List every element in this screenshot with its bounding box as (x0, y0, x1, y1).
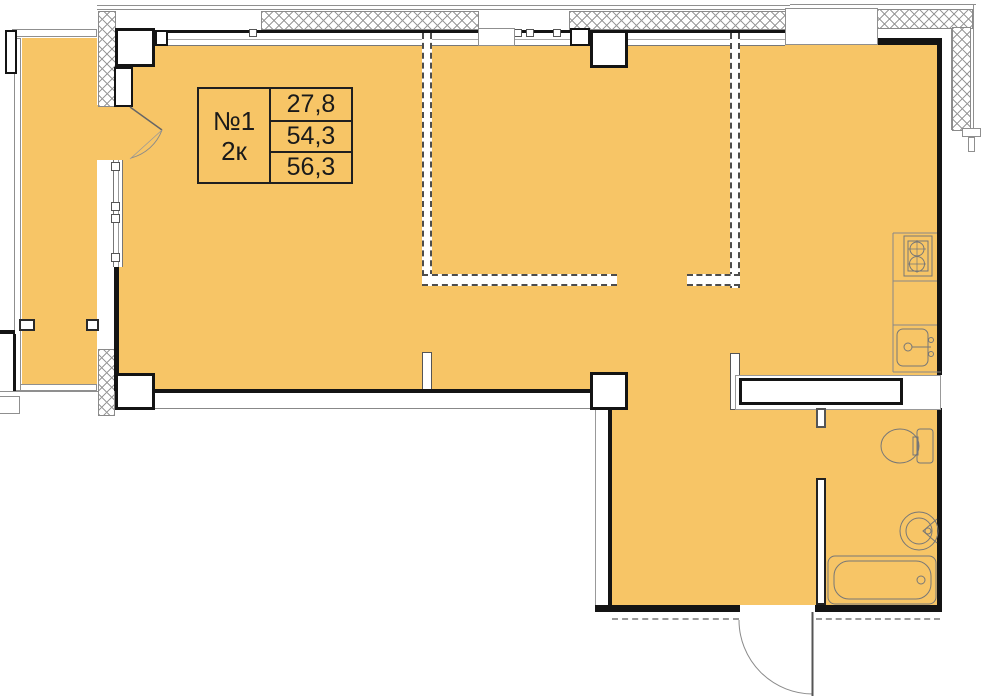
unit-area-1: 27,8 (271, 89, 351, 120)
column (590, 372, 628, 410)
outer-line (0, 413, 20, 414)
dashed-partition-horizontal (422, 274, 617, 286)
wall-hall-left (608, 408, 612, 605)
wardrobe-niche (739, 378, 903, 405)
column (590, 30, 628, 68)
wall-top-right (878, 38, 941, 45)
unit-area-3: 56,3 (271, 151, 351, 182)
unit-label-table: №1 2к 27,8 54,3 56,3 (197, 87, 353, 184)
outer-line (951, 28, 952, 130)
hatched-wall (570, 12, 785, 29)
facade-pier (785, 8, 878, 45)
wall-bottom-bath (815, 605, 941, 612)
floor-area-hall-bath (612, 408, 937, 605)
floor-plan: №1 2к 27,8 54,3 56,3 (0, 0, 983, 700)
hatched-wall (99, 350, 114, 415)
balcony-stub (19, 319, 35, 331)
outer-line (0, 396, 20, 397)
outer-line (790, 4, 976, 5)
outer-line (97, 9, 790, 10)
unit-areas-cells: 27,8 54,3 56,3 (271, 89, 351, 182)
window-vent (111, 162, 120, 171)
balcony-rail-top (12, 29, 97, 37)
column-stub (570, 28, 590, 46)
bathroom-wall (816, 478, 826, 605)
balcony-stub (86, 319, 99, 331)
window (628, 30, 785, 46)
outer-line (19, 396, 20, 414)
unit-type: 2к (221, 138, 247, 164)
window-vent (111, 202, 120, 211)
wall-right-lower (937, 408, 942, 612)
unit-id-cell: №1 2к (199, 89, 271, 182)
dashed-partition-vertical (730, 33, 740, 288)
dashed-partition-horizontal (687, 274, 740, 286)
exterior-pipe (968, 137, 975, 152)
facade-pier (478, 28, 515, 46)
balcony-door-opening (95, 105, 117, 160)
wall-segment (13, 334, 16, 391)
window-vent (514, 29, 522, 37)
hatched-wall (99, 12, 115, 106)
wall-right-upper (937, 38, 942, 375)
wall-main-bottom (155, 389, 590, 409)
floor-area-balcony (22, 38, 97, 385)
window-vent (526, 29, 534, 37)
column-stub (155, 30, 168, 46)
partition-stub (422, 352, 432, 390)
balcony-rail-bottom (20, 384, 97, 391)
hatched-wall (262, 12, 478, 29)
window-glass-line (515, 39, 570, 40)
wall-segment (114, 67, 133, 107)
unit-number: №1 (213, 108, 255, 134)
column (115, 28, 155, 67)
window-glass-line (628, 39, 785, 40)
balcony-end-post (5, 30, 17, 74)
unit-area-2: 54,3 (271, 120, 351, 151)
window-vent (111, 253, 120, 262)
threshold-line (612, 618, 739, 620)
threshold-line (816, 618, 940, 620)
wall-bottom-hall (595, 605, 740, 612)
column (115, 373, 155, 410)
bathroom-wall-stub (816, 408, 826, 428)
window-vent (111, 214, 120, 223)
window-vent (553, 29, 561, 37)
window (515, 30, 570, 46)
wall-hall-left-fill (595, 408, 608, 605)
window-vent (249, 29, 257, 37)
outer-line (97, 5, 790, 6)
outer-line (0, 391, 98, 392)
exterior-pipe (962, 128, 981, 137)
hatched-wall (878, 10, 972, 28)
hatched-wall (953, 28, 970, 130)
dashed-partition-vertical (422, 33, 432, 286)
entrance-door-arc (739, 612, 813, 696)
